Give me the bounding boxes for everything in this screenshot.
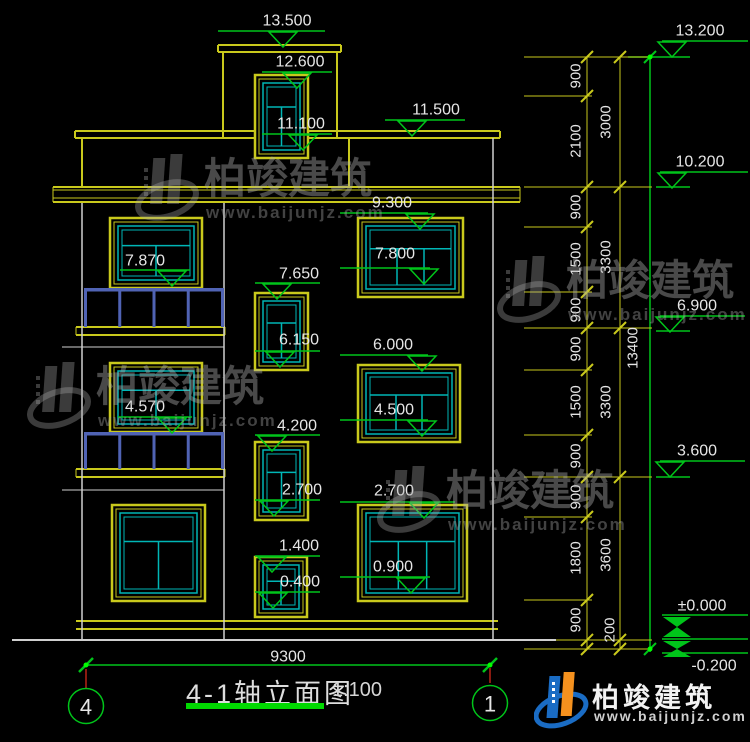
- dim-label: 3000: [598, 105, 615, 138]
- balcony-post: [153, 292, 156, 328]
- elevation-label: 13.500: [263, 13, 312, 30]
- brand-logo-icon: [534, 668, 590, 730]
- elevation-label: ±0.000: [678, 598, 727, 615]
- balcony-post: [221, 436, 224, 470]
- watermark-url: www.baijunjz.com: [568, 306, 747, 323]
- elevation-label: 7.870: [125, 253, 165, 270]
- balcony-post: [187, 436, 190, 470]
- watermark-brand: 柏竣建筑: [96, 366, 264, 408]
- dim-dot: [84, 663, 89, 668]
- brand-logo: [534, 668, 590, 730]
- balcony-post: [84, 436, 87, 470]
- elevation-label: 4.500: [374, 402, 414, 419]
- elevation-label: 1.400: [279, 538, 319, 555]
- dim-label: 900: [568, 194, 585, 219]
- elevation-label: 0.400: [280, 574, 320, 591]
- zero-marker-triangle: [663, 641, 691, 649]
- dim-label: 3300: [598, 385, 615, 418]
- elevation-label: 7.650: [279, 266, 319, 283]
- elevation-label: 6.000: [373, 337, 413, 354]
- dim-label: 200: [602, 617, 619, 642]
- elevation-label: 13.200: [676, 23, 725, 40]
- watermark-brand: 柏竣建筑: [204, 158, 372, 200]
- elevation-label: 3.600: [677, 443, 717, 460]
- elevation-label: 2.700: [282, 482, 322, 499]
- dim-dot: [488, 663, 493, 668]
- watermark-brand: 柏竣建筑: [446, 470, 614, 512]
- elevation-label: 7.800: [375, 246, 415, 263]
- elevation-triangle: [656, 462, 684, 477]
- axis-number: 4: [80, 695, 92, 720]
- watermark-brand: 柏竣建筑: [566, 260, 734, 302]
- elevation-label: 2.700: [374, 483, 414, 500]
- dim-label: 1800: [568, 541, 585, 574]
- balcony-post: [221, 292, 224, 328]
- balcony-post: [153, 436, 156, 470]
- drawing-scale: 1:100: [332, 679, 382, 702]
- elevation-label: -0.200: [691, 658, 736, 675]
- watermark-url: www.baijunjz.com: [448, 516, 627, 533]
- balcony-rail: [84, 432, 224, 436]
- watermark-url: www.baijunjz.com: [98, 412, 277, 429]
- dim-label: 900: [568, 63, 585, 88]
- dim-dot: [648, 647, 653, 652]
- axis-number: 1: [484, 692, 496, 717]
- dim-label: 900: [568, 607, 585, 632]
- elevation-label: 6.150: [279, 332, 319, 349]
- blueprint-canvas: 13.50012.60011.10011.5009.3007.8707.8007…: [0, 0, 750, 742]
- zero-marker-triangle: [663, 627, 691, 637]
- balcony-rail: [84, 288, 224, 292]
- balcony-post: [84, 292, 87, 328]
- elevation-label: 11.500: [412, 102, 460, 119]
- elevation-label: 4.200: [277, 418, 317, 435]
- dim-label: 13400: [625, 327, 642, 369]
- dim-dot: [648, 55, 653, 60]
- dim-label: 1500: [568, 385, 585, 418]
- watermark-url: www.baijunjz.com: [206, 204, 385, 221]
- elevation-label: 11.100: [277, 116, 325, 133]
- dim-label: 9300: [270, 649, 306, 666]
- zero-marker-triangle: [663, 617, 691, 627]
- title-underline: [186, 703, 324, 709]
- elevation-triangle: [398, 121, 426, 136]
- dim-label: 2100: [568, 124, 585, 157]
- brand-url: www.baijunjz.com: [594, 708, 747, 724]
- elevation-label: 0.900: [373, 559, 413, 576]
- dim-label: 3600: [598, 538, 615, 571]
- dim-label: 900: [568, 336, 585, 361]
- elevation-triangle: [658, 173, 686, 188]
- balcony-post: [187, 292, 190, 328]
- elevation-label: 10.200: [676, 154, 725, 171]
- elevation-triangle: [658, 42, 686, 57]
- balcony-post: [118, 436, 121, 470]
- balcony-post: [118, 292, 121, 328]
- dim-label: 900: [568, 443, 585, 468]
- elevation-label: 12.600: [276, 54, 325, 71]
